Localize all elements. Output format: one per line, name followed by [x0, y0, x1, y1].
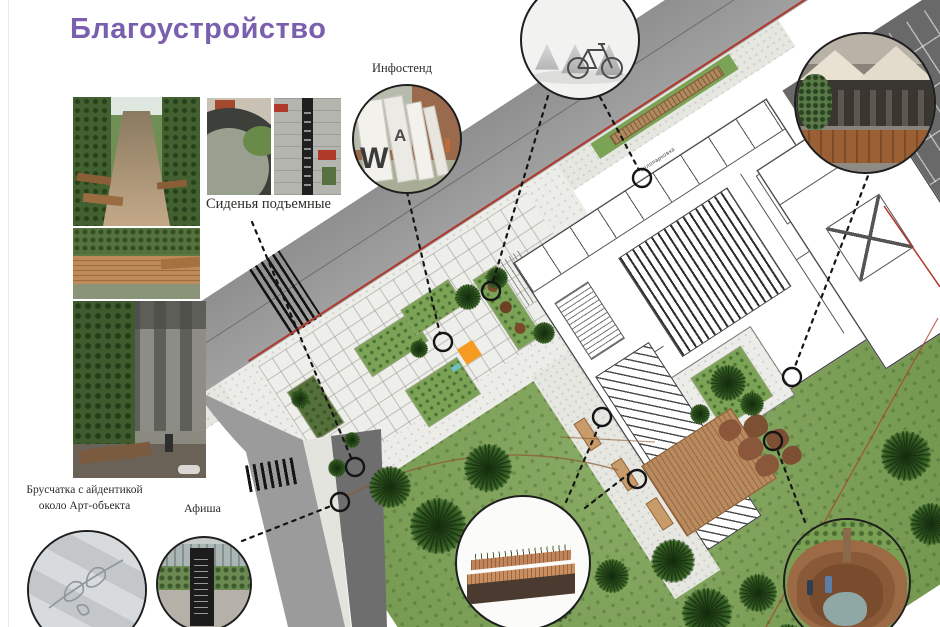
bicycle-icon [564, 36, 626, 80]
tree-icon [410, 340, 428, 358]
photo-aerial-signage [274, 98, 341, 195]
callout-street-cafe [794, 32, 936, 174]
tree-icon [710, 365, 746, 401]
wayfinding-letter-a: A [394, 126, 406, 146]
callout-multilevel-seats [783, 518, 911, 627]
tree-icon [881, 431, 931, 481]
label-paving-identity: Брусчатка с айдентикой около Арт-объекта [12, 483, 157, 514]
bush-icon [328, 459, 346, 477]
plants [798, 74, 832, 130]
callout-poster [156, 536, 252, 627]
tree-icon [464, 444, 512, 492]
tree-icon [739, 574, 777, 612]
tree-icon [651, 539, 695, 583]
presentation-slide: велопарковка Благоустройство [0, 0, 940, 627]
totem-sign-icon [190, 548, 214, 626]
label-paving-identity-line1: Брусчатка с айдентикой [12, 483, 157, 499]
tree-icon [740, 392, 764, 416]
page-title: Благоустройство [70, 13, 326, 46]
person-figure [807, 580, 813, 595]
callout-linear-bench [455, 495, 591, 627]
callout-infostand: W A [352, 84, 462, 194]
tree-icon [595, 559, 629, 593]
slide-edge-line [8, 0, 9, 627]
callout-paving-identity [27, 530, 147, 627]
tree-icon [486, 267, 508, 289]
wayfinding-letter-w: W [360, 142, 388, 176]
person-figure [825, 576, 832, 593]
wooden-post [843, 528, 851, 562]
photo-boardwalk [73, 228, 200, 299]
photo-birch-alley [73, 97, 200, 226]
photo-courtyard [73, 301, 206, 478]
leaf-engraving-icon [43, 548, 129, 618]
label-infostand: Инфостенд [372, 61, 432, 76]
label-paving-identity-line2: около Арт-объекта [12, 499, 157, 515]
tree-icon [690, 404, 710, 424]
bush-icon [291, 390, 309, 408]
tree-icon [455, 284, 481, 310]
label-poster: Афиша [184, 501, 221, 516]
photo-curved-path [207, 98, 271, 195]
person-figure [445, 138, 450, 152]
bush-icon [344, 432, 360, 448]
tree-icon [369, 466, 411, 508]
label-lifting-seats: Сиденья подъемные [206, 196, 331, 213]
bike-rack-icon [534, 42, 560, 72]
pool [823, 592, 867, 626]
photo-watermark-icons [178, 465, 200, 474]
crosswalk-icon [249, 250, 322, 335]
tree-icon [533, 322, 555, 344]
